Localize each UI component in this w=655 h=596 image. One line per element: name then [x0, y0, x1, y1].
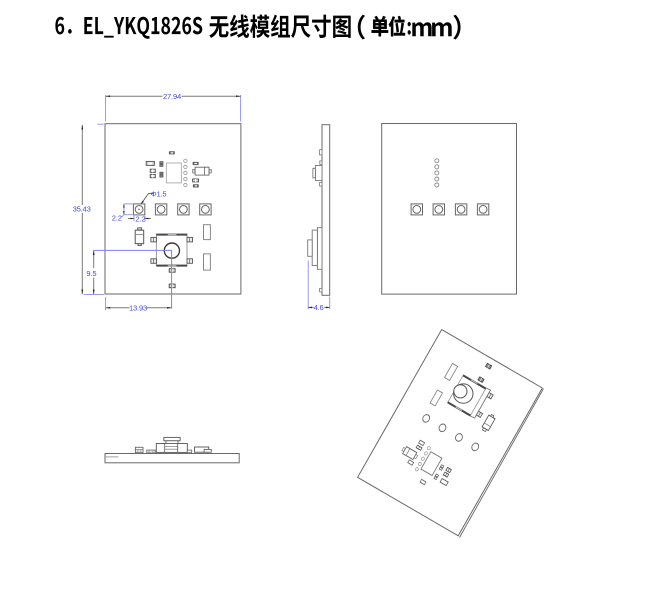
svg-text:13.93: 13.93 — [129, 303, 147, 312]
svg-text:Φ1.5: Φ1.5 — [151, 190, 167, 199]
svg-text:27.94: 27.94 — [163, 92, 181, 101]
svg-text:35.43: 35.43 — [73, 205, 91, 214]
svg-text:2.2: 2.2 — [112, 213, 122, 222]
svg-text:9.5: 9.5 — [86, 269, 96, 278]
svg-text:4.6: 4.6 — [314, 303, 324, 312]
svg-text:2.2: 2.2 — [135, 214, 145, 223]
